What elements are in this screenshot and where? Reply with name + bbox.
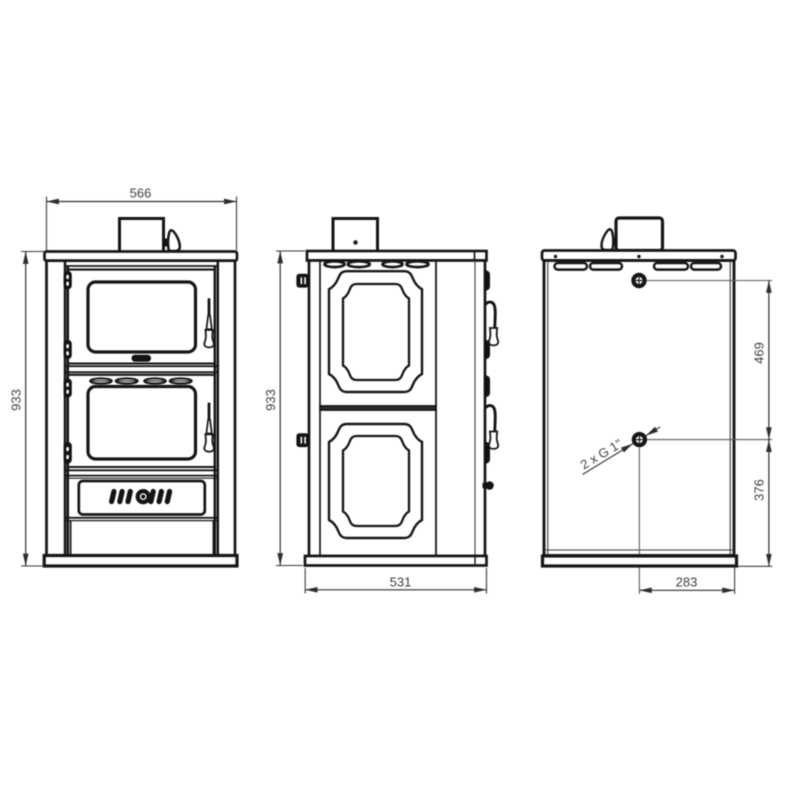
svg-text:933: 933	[263, 389, 278, 411]
svg-text:469: 469	[752, 342, 767, 364]
svg-text:566: 566	[130, 186, 152, 201]
svg-text:376: 376	[752, 479, 767, 501]
svg-text:283: 283	[676, 575, 698, 590]
svg-text:531: 531	[390, 574, 412, 589]
svg-text:933: 933	[9, 389, 24, 411]
